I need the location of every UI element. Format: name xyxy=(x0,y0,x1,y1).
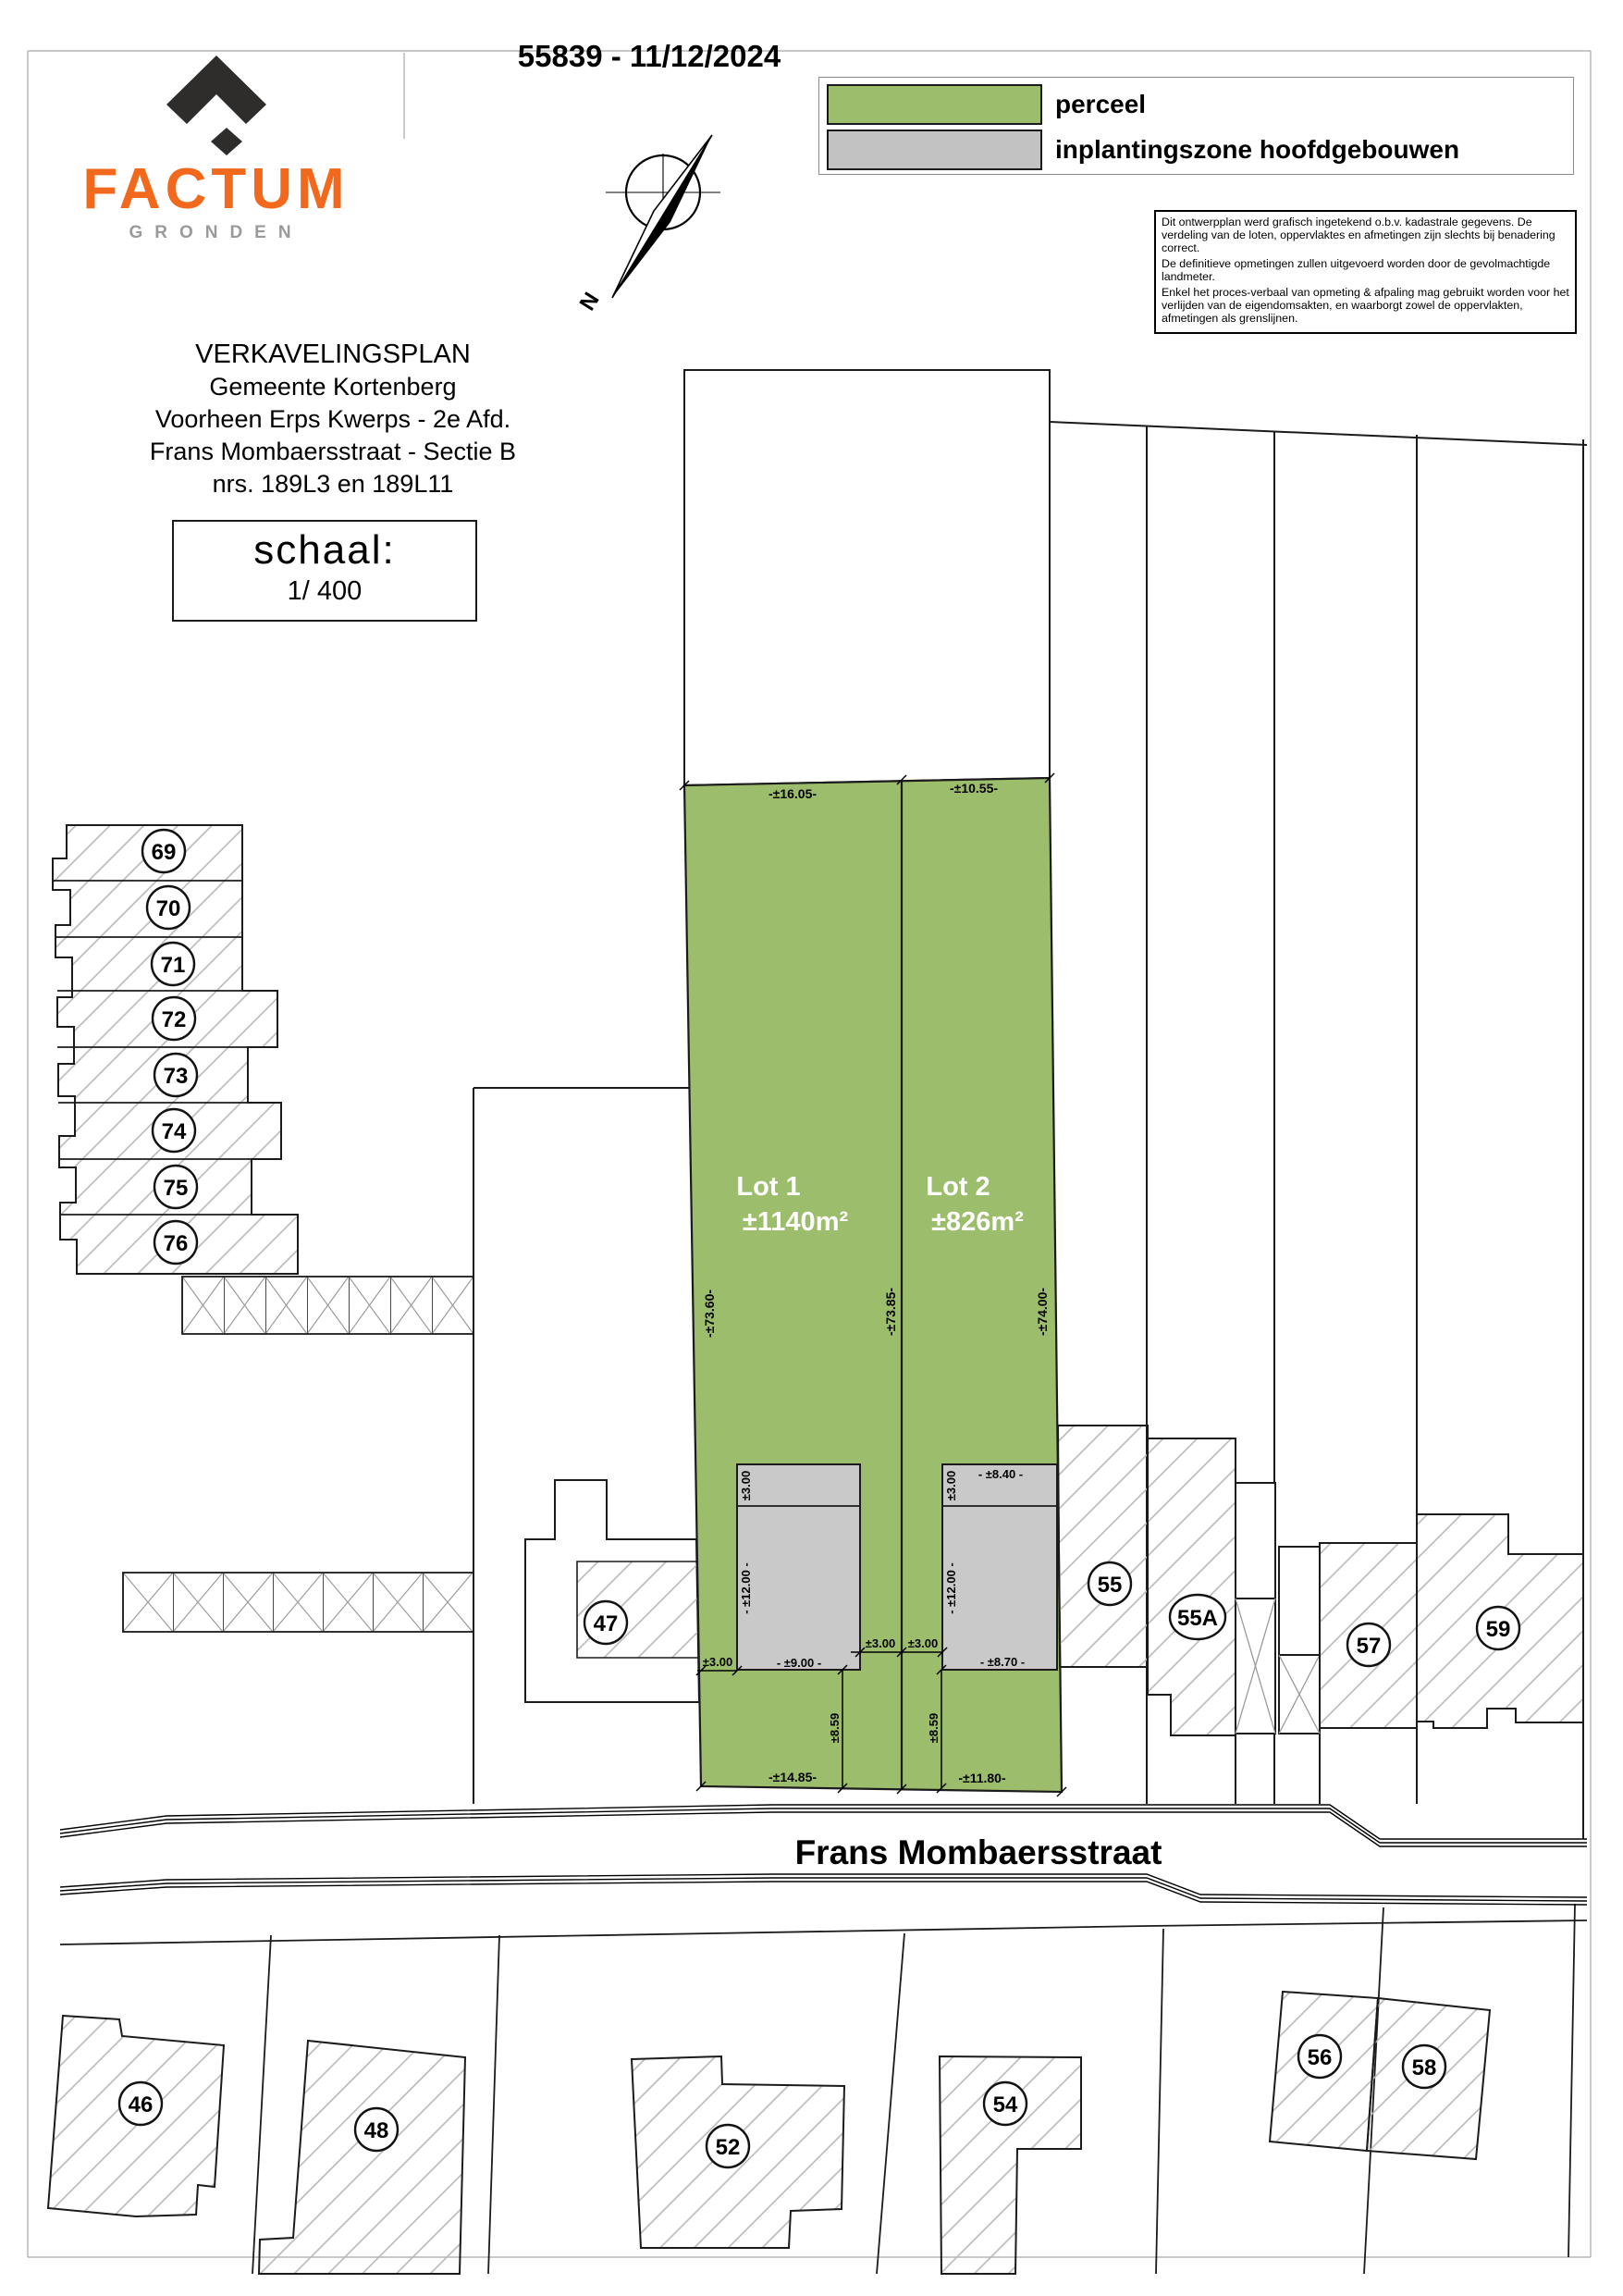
dim-lot2-width-bottom: -±11.80- xyxy=(958,1771,1006,1785)
parcel-75-badge: 75 xyxy=(154,1166,197,1208)
garage-row-lower xyxy=(123,1573,473,1632)
disclaimer-note: Dit ontwerpplan werd grafisch ingetekend… xyxy=(1154,210,1577,334)
legend: perceel inplantingszone hoofdgebouwen xyxy=(818,77,1574,175)
parcel-69-badge: 69 xyxy=(142,830,185,872)
parcel-59-badge: 59 xyxy=(1477,1607,1519,1649)
svg-text:55A: 55A xyxy=(1177,1606,1218,1631)
parcel-55a-shape xyxy=(1148,1438,1236,1735)
dim-bz1-offset-left: ±3.00 xyxy=(703,1655,732,1669)
parcel-58-badge: 58 xyxy=(1403,2045,1445,2088)
shed-2 xyxy=(1279,1547,1320,1655)
dim-lot1-depth-left: -±73.60- xyxy=(702,1290,717,1338)
building-zone-lot2 xyxy=(942,1464,1057,1670)
factum-logo-icon xyxy=(165,54,268,157)
parcel-47-badge: 47 xyxy=(584,1601,627,1644)
dim-lot2-depth-right: -±74.00- xyxy=(1035,1288,1050,1336)
parcels-below-street xyxy=(48,1992,1490,2274)
dim-bz1-depth: - ±12.00 - xyxy=(739,1562,753,1614)
dim-lot1-width-top: -±16.05- xyxy=(768,786,817,801)
svg-text:52: 52 xyxy=(716,2135,741,2160)
svg-text:71: 71 xyxy=(161,953,186,978)
verkavelingsplan-page: N xyxy=(0,0,1623,2296)
svg-text:70: 70 xyxy=(156,896,181,921)
parcel-72-badge: 72 xyxy=(153,997,195,1040)
disclaimer-paragraph-3: Enkel het proces-verbaal van opmeting & … xyxy=(1162,286,1569,325)
parcel-52-badge: 52 xyxy=(707,2125,749,2167)
parcel-73-badge: 73 xyxy=(154,1054,197,1096)
svg-text:59: 59 xyxy=(1486,1617,1511,1642)
svg-text:46: 46 xyxy=(129,2092,154,2117)
legend-swatch-perceel xyxy=(827,84,1042,125)
dim-bz2-width-top: - ±8.40 - xyxy=(978,1467,1023,1481)
svg-text:57: 57 xyxy=(1357,1634,1382,1659)
title-former-division: Voorheen Erps Kwerps - 2e Afd. xyxy=(60,403,606,436)
svg-text:73: 73 xyxy=(164,1064,189,1089)
building-zone-lot1 xyxy=(737,1464,860,1670)
lot1-name: Lot 1 xyxy=(736,1172,800,1202)
parcel-70-badge: 70 xyxy=(147,886,190,929)
parcels-right-of-lots xyxy=(1058,1426,1583,1735)
factum-logo: FACTUM GRONDEN xyxy=(28,54,404,243)
svg-text:76: 76 xyxy=(164,1231,189,1256)
dim-bz2-depth: - ±12.00 - xyxy=(944,1562,958,1614)
legend-swatch-inplantingszone xyxy=(827,130,1042,170)
legend-label-inplantingszone: inplantingszone hoofdgebouwen xyxy=(1055,135,1459,165)
factum-brand-text: FACTUM xyxy=(28,162,404,217)
legend-row-inplantingszone: inplantingszone hoofdgebouwen xyxy=(827,130,1459,170)
svg-text:58: 58 xyxy=(1412,2055,1437,2080)
legend-row-perceel: perceel xyxy=(827,84,1146,125)
svg-text:47: 47 xyxy=(594,1611,619,1636)
scale-label: schaal: xyxy=(174,527,475,574)
dim-setback-lot1: ±8.59 xyxy=(828,1713,842,1743)
building-47 xyxy=(525,1480,699,1702)
parcel-54-badge: 54 xyxy=(984,2082,1027,2125)
scale-value: 1/ 400 xyxy=(174,576,475,607)
dim-bz1-front-strip: ±3.00 xyxy=(739,1471,753,1500)
parcel-57-badge: 57 xyxy=(1347,1623,1390,1666)
title-block: VERKAVELINGSPLAN Gemeente Kortenberg Voo… xyxy=(60,338,606,500)
title-street-section: Frans Mombaersstraat - Sectie B xyxy=(60,436,606,468)
scale-box: schaal: 1/ 400 xyxy=(172,520,477,622)
svg-text:55: 55 xyxy=(1098,1573,1123,1598)
north-compass: N xyxy=(575,135,720,315)
garage-row-upper xyxy=(182,1277,473,1334)
dim-bz2-front-strip: ±3.00 xyxy=(944,1471,958,1500)
parcel-71-badge: 71 xyxy=(152,943,194,985)
disclaimer-paragraph-1: Dit ontwerpplan werd grafisch ingetekend… xyxy=(1162,216,1569,254)
parcel-48-badge: 48 xyxy=(355,2108,398,2151)
dim-lot1-width-bottom: -±14.85- xyxy=(768,1770,817,1784)
title-plan-type: VERKAVELINGSPLAN xyxy=(60,338,606,371)
parent-parcel-outline xyxy=(684,370,1050,785)
compass-n-label: N xyxy=(575,289,605,315)
parcel-55a-badge: 55A xyxy=(1170,1595,1225,1639)
parcel-76-badge: 76 xyxy=(154,1221,197,1264)
dim-setback-lot2: ±8.59 xyxy=(927,1713,941,1743)
svg-text:69: 69 xyxy=(152,840,177,865)
factum-subtitle-text: GRONDEN xyxy=(28,223,404,243)
title-cadastral-numbers: nrs. 189L3 en 189L11 xyxy=(60,468,606,500)
dim-bz1-width: - ±9.00 - xyxy=(777,1656,821,1670)
dim-bz1-offset-right: ±3.00 xyxy=(866,1636,895,1650)
shed-1 xyxy=(1236,1483,1275,1599)
dim-lot2-width-top: -±10.55- xyxy=(950,781,998,796)
lot1-area: ±1140m² xyxy=(743,1207,849,1237)
dim-bz2-offset-left: ±3.00 xyxy=(908,1636,938,1650)
parcel-55-badge: 55 xyxy=(1088,1562,1131,1605)
dim-bz2-width-bottom: - ±8.70 - xyxy=(980,1655,1025,1669)
legend-label-perceel: perceel xyxy=(1055,90,1146,119)
svg-text:72: 72 xyxy=(162,1007,187,1032)
lot2-area: ±826m² xyxy=(931,1207,1024,1237)
parcel-48-shape xyxy=(259,2041,465,2274)
svg-text:48: 48 xyxy=(364,2118,389,2143)
svg-text:74: 74 xyxy=(162,1119,187,1144)
title-municipality: Gemeente Kortenberg xyxy=(60,371,606,403)
plan-number: 55839 - 11/12/2024 xyxy=(455,39,843,74)
dim-depth-middle: -±73.85- xyxy=(883,1288,898,1336)
svg-text:54: 54 xyxy=(993,2092,1018,2117)
disclaimer-paragraph-2: De definitieve opmetingen zullen uitgevo… xyxy=(1162,257,1569,283)
parcel-74-badge: 74 xyxy=(153,1109,195,1152)
svg-text:75: 75 xyxy=(164,1176,189,1201)
svg-text:56: 56 xyxy=(1308,2045,1333,2070)
parcel-56-badge: 56 xyxy=(1298,2035,1341,2078)
street-name-label: Frans Mombaersstraat xyxy=(795,1833,1162,1871)
lot2-name: Lot 2 xyxy=(926,1172,990,1202)
parcel-46-badge: 46 xyxy=(119,2082,162,2125)
parcel-55-shape xyxy=(1058,1426,1148,1667)
